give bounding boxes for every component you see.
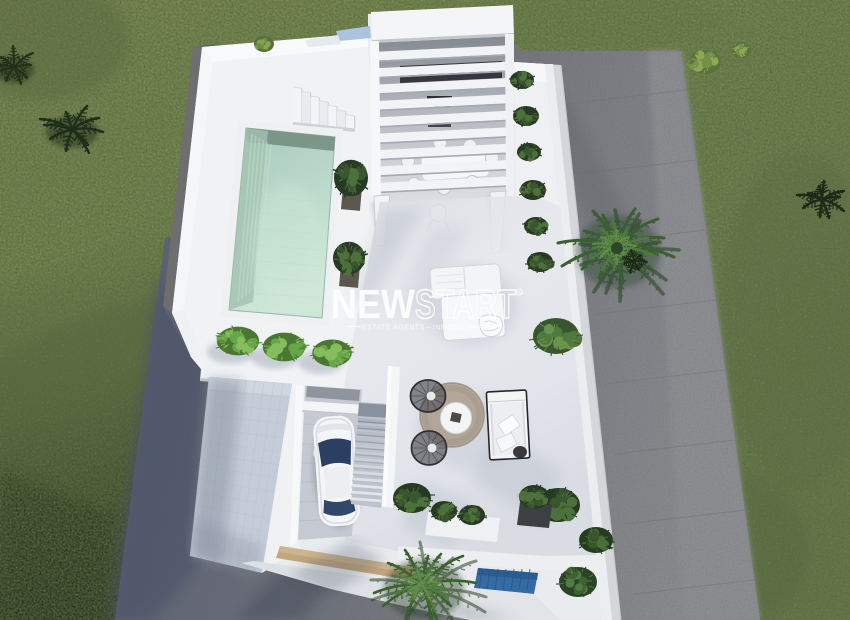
svg-text:START: START bbox=[415, 281, 516, 327]
svg-text:NEW: NEW bbox=[331, 281, 416, 327]
svg-text:ESTATE AGENTS – INMOBILIARIA: ESTATE AGENTS – INMOBILIARIA bbox=[362, 325, 486, 332]
